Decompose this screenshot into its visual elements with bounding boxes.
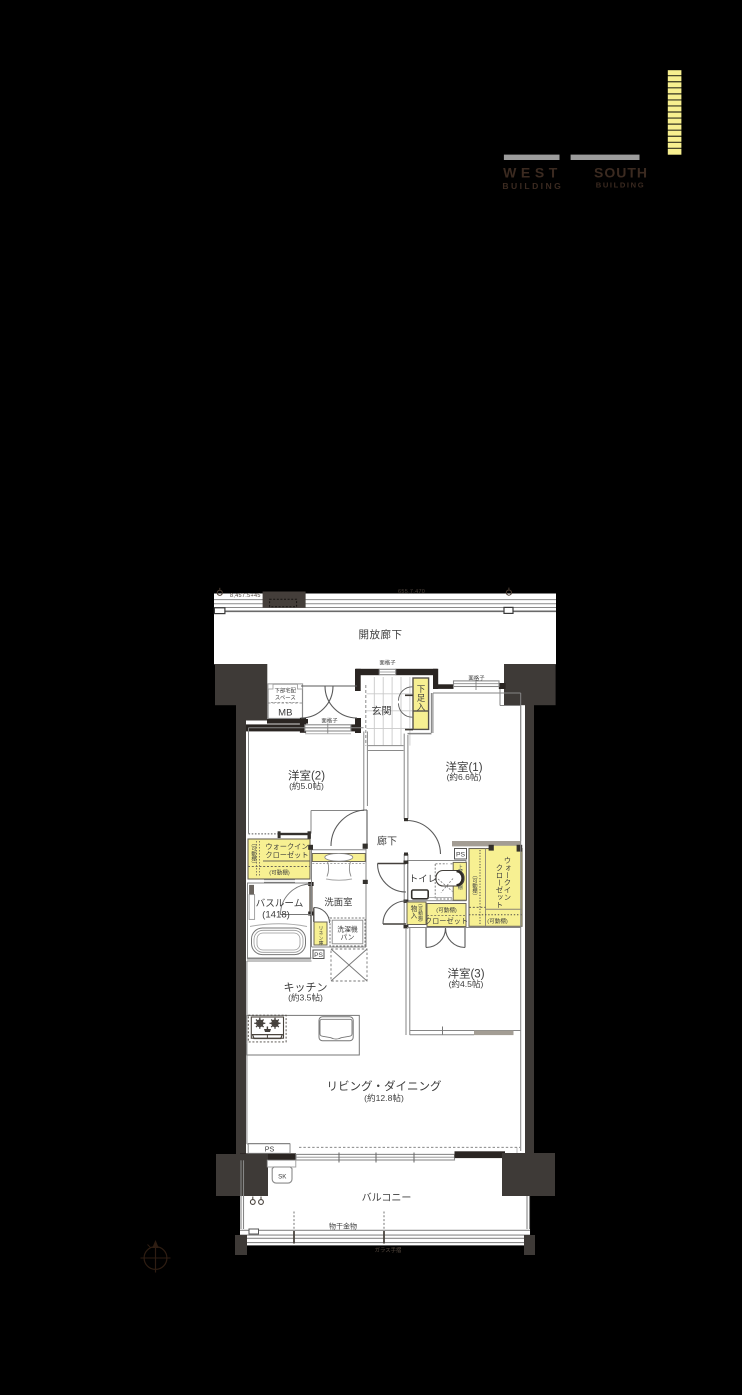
svg-text:WEST: WEST xyxy=(503,165,562,181)
svg-text:廊下: 廊下 xyxy=(377,835,397,848)
svg-text:(約3.5帖): (約3.5帖) xyxy=(288,992,323,1003)
svg-text:(可動棚): (可動棚) xyxy=(269,869,290,877)
svg-text:PS: PS xyxy=(314,952,323,959)
svg-text:面格子: 面格子 xyxy=(468,674,485,682)
svg-text:クローゼット: クローゼット xyxy=(495,864,504,909)
svg-text:下部宅配: 下部宅配 xyxy=(275,687,297,695)
svg-text:入: 入 xyxy=(417,702,426,712)
svg-text:面格子: 面格子 xyxy=(379,659,396,667)
svg-text:(可動棚): (可動棚) xyxy=(487,917,508,925)
svg-text:(約6.6帖): (約6.6帖) xyxy=(447,771,482,782)
svg-text:SK: SK xyxy=(278,1174,287,1181)
svg-text:(約12.8帖): (約12.8帖) xyxy=(364,1092,404,1103)
svg-text:ガラス手摺: ガラス手摺 xyxy=(375,1246,402,1254)
svg-text:バルコニー: バルコニー xyxy=(362,1192,412,1204)
svg-text:開放廊下: 開放廊下 xyxy=(359,628,403,641)
svg-text:(可動棚): (可動棚) xyxy=(472,876,478,895)
svg-text:トイレ: トイレ xyxy=(409,873,437,884)
svg-text:(約5.0帖): (約5.0帖) xyxy=(289,780,324,791)
svg-text:洗濯機: 洗濯機 xyxy=(337,925,358,934)
svg-text:PS: PS xyxy=(456,852,466,859)
svg-text:クローゼット: クローゼット xyxy=(425,917,468,926)
svg-text:クローゼット: クローゼット xyxy=(265,851,308,860)
svg-text:玄関: 玄関 xyxy=(372,705,392,718)
svg-text:SOUTH: SOUTH xyxy=(594,165,648,181)
svg-text:(可動棚): (可動棚) xyxy=(251,844,257,863)
svg-text:655,7,470: 655,7,470 xyxy=(398,589,425,595)
svg-text:PS: PS xyxy=(265,1145,275,1154)
svg-text:BUILDING: BUILDING xyxy=(596,180,646,189)
svg-text:ウォークイン: ウォークイン xyxy=(503,857,512,902)
svg-text:パン: パン xyxy=(341,934,355,942)
svg-text:リビング・ダイニング: リビング・ダイニング xyxy=(327,1079,442,1093)
svg-text:8,457.5+45: 8,457.5+45 xyxy=(230,593,261,599)
svg-text:物干金物: 物干金物 xyxy=(329,1222,357,1231)
svg-text:MB: MB xyxy=(278,708,292,719)
svg-text:BUILDING: BUILDING xyxy=(502,181,563,191)
svg-text:面格子: 面格子 xyxy=(321,717,338,725)
svg-text:スペース: スペース xyxy=(275,695,296,702)
svg-text:(約4.5帖): (約4.5帖) xyxy=(449,978,484,989)
svg-text:バスルーム: バスルーム xyxy=(256,899,304,910)
svg-text:(1418): (1418) xyxy=(262,910,290,921)
svg-text:(可動棚): (可動棚) xyxy=(436,906,457,914)
svg-text:洗面室: 洗面室 xyxy=(324,897,352,908)
svg-text:リネン庫: リネン庫 xyxy=(318,926,324,947)
